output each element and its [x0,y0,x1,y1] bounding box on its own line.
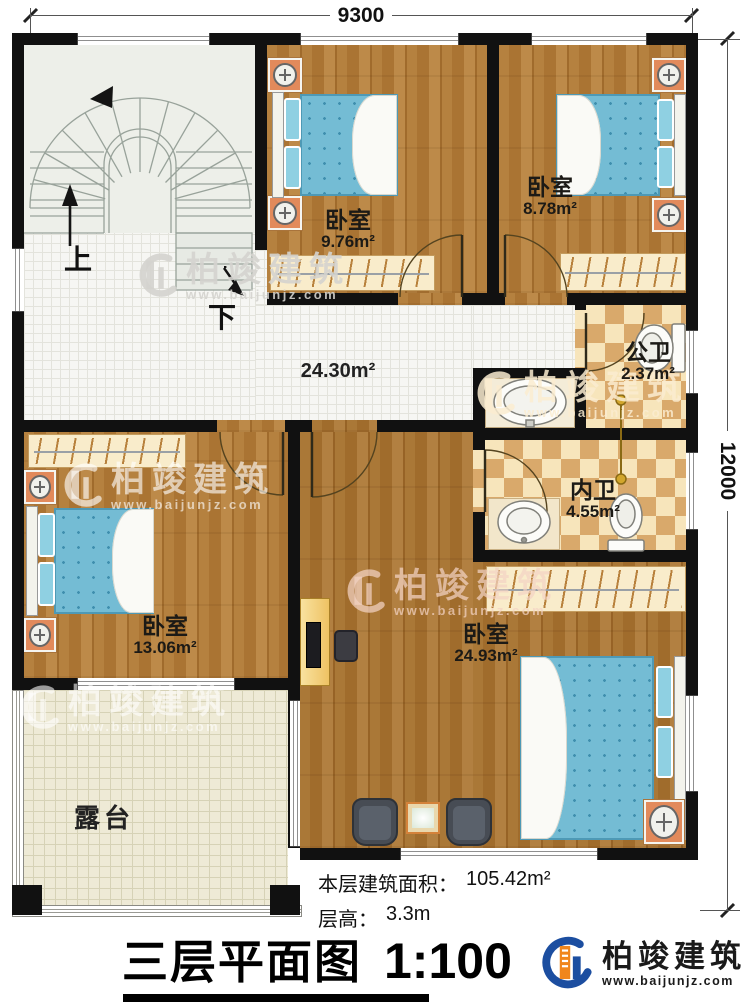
dimension-top-value: 9300 [330,5,392,27]
room-name: 内卫 [543,478,643,503]
terrace-sliding-door [290,700,300,847]
brand-name: 柏竣建筑 [602,941,746,972]
stair-down-label: 下 [208,296,236,336]
window-top-stair [77,33,210,45]
bed-headboard [26,506,38,616]
stair-up-label: 上 [64,238,92,278]
door-threshold [505,293,567,305]
wall-hall-south-c [377,420,473,432]
nightstand [24,470,56,504]
dimension-ext-top-left [30,8,31,33]
window-top-bedroom-mid [300,33,459,45]
title-underline-bar [123,994,429,1002]
terrace-post-left [12,885,42,915]
room-label-bedroom-main: 卧室 24.93m² [434,622,538,665]
wall-private-bath-bottom [473,550,698,562]
door-threshold [575,310,586,371]
room-area: 13.06m² [115,639,215,657]
dimension-ext-right-top [698,39,740,40]
wall-niche-top [473,368,586,378]
floor-area-value: 105.42m² [466,868,551,897]
media-cabinet [334,630,358,662]
window-bottom-bedroom-main [400,848,598,860]
plan-scale: 1:100 [384,932,512,990]
brand-logo-block: 柏竣建筑 www.baijunjz.com [538,936,746,996]
wardrobe [28,434,186,468]
bed-pillow [284,98,301,141]
room-area: 8.78m² [500,200,600,218]
wall-between-bottom-bedrooms [288,420,300,690]
bed-headboard [272,92,284,198]
terrace-rail-bottom [12,905,302,917]
brand-url: www.baijunjz.com [602,972,746,991]
bed-pillow [656,666,673,718]
room-label-bedroom-top-mid: 卧室 9.76m² [298,208,398,251]
room-area: 2.37m² [598,365,698,383]
wall-between-top-bedrooms [487,33,499,305]
bed-duvet [521,657,567,839]
wall-public-bath-west-a [575,303,586,310]
terrace-floor [22,690,288,905]
bed-duvet [112,509,154,613]
wardrobe [486,566,686,612]
room-area: 24.93m² [434,647,538,665]
window-bottom-bedroom-left [77,678,235,690]
wardrobe [270,255,435,291]
bed-duvet [352,95,397,195]
room-label-public-bath: 公卫 2.37m² [598,340,698,383]
hall-floor-strip [255,250,267,305]
stair-room-floor [24,45,255,233]
bed-pillow [657,146,674,188]
wall-hall-south-a [12,420,217,432]
wall-bedroom-top-mid-south-b [462,293,487,305]
wall-stair-east [255,33,267,250]
corridor-floor-east [473,305,575,368]
bed-headboard [674,94,686,196]
room-label-bedroom-left: 卧室 13.06m² [115,614,215,657]
wall-bedroom-top-mid-south-a [267,293,398,305]
side-table [406,802,440,834]
bed-pillow [657,99,674,141]
nightstand [268,196,302,230]
bed-pillow [38,562,55,606]
terrace-post-right [270,885,300,915]
wall-private-bath-west-a [473,368,485,450]
wall-left [12,33,24,690]
wall-public-bath-west-b [575,371,586,428]
tv [306,622,321,668]
door-threshold [217,420,285,432]
plan-title-text: 三层平面图 [122,926,362,992]
chair [352,798,398,846]
door-threshold [398,293,462,305]
wash-niche [485,378,575,428]
nightstand [24,618,56,652]
dimension-ext-right-bottom [700,910,740,911]
room-area: 4.55m² [543,503,643,521]
floor-area-label: 本层建筑面积： [318,868,458,897]
nightstand [652,58,686,92]
chair [446,798,492,846]
nightstand [652,198,686,232]
room-label-private-bath: 内卫 4.55m² [543,478,643,521]
room-name: 卧室 [500,175,600,200]
window-top-bedroom-right [531,33,647,45]
door-threshold [312,420,377,432]
door-threshold [473,450,485,512]
terrace-label: 露台 [74,798,134,835]
bed-pillow [284,146,301,189]
room-name: 公卫 [598,340,698,365]
room-area: 9.76m² [298,233,398,251]
room-label-bedroom-top-right: 卧室 8.78m² [500,175,600,218]
plan-title: 三层平面图 1:100 [122,926,512,992]
nightstand [268,58,302,92]
terrace-rail-left [12,690,24,917]
room-name: 卧室 [434,622,538,647]
wall-bedroom-top-right-south-b [567,293,698,305]
dimension-ext-top-right [692,8,693,33]
hall-area-label: 24.30m² [298,360,378,383]
room-name: 卧室 [298,208,398,233]
nightstand [644,800,684,844]
dimension-right-value: 12000 [716,431,738,511]
brand-logo-icon [538,936,592,996]
bed-pillow [38,513,55,557]
window-left-hall [12,248,24,312]
window-right-private-bath [686,452,698,530]
window-right-bedroom-main [686,695,698,792]
wall-private-bath-top [473,428,698,440]
wall-bedroom-top-right-south-a [499,293,505,305]
bed-pillow [656,726,673,778]
wardrobe [560,253,686,291]
room-name: 卧室 [115,614,215,639]
floor-plan-canvas: 卧室 9.76m² 卧室 8.78m² 公卫 2.37m² 内卫 4.55m² … [0,0,750,1002]
